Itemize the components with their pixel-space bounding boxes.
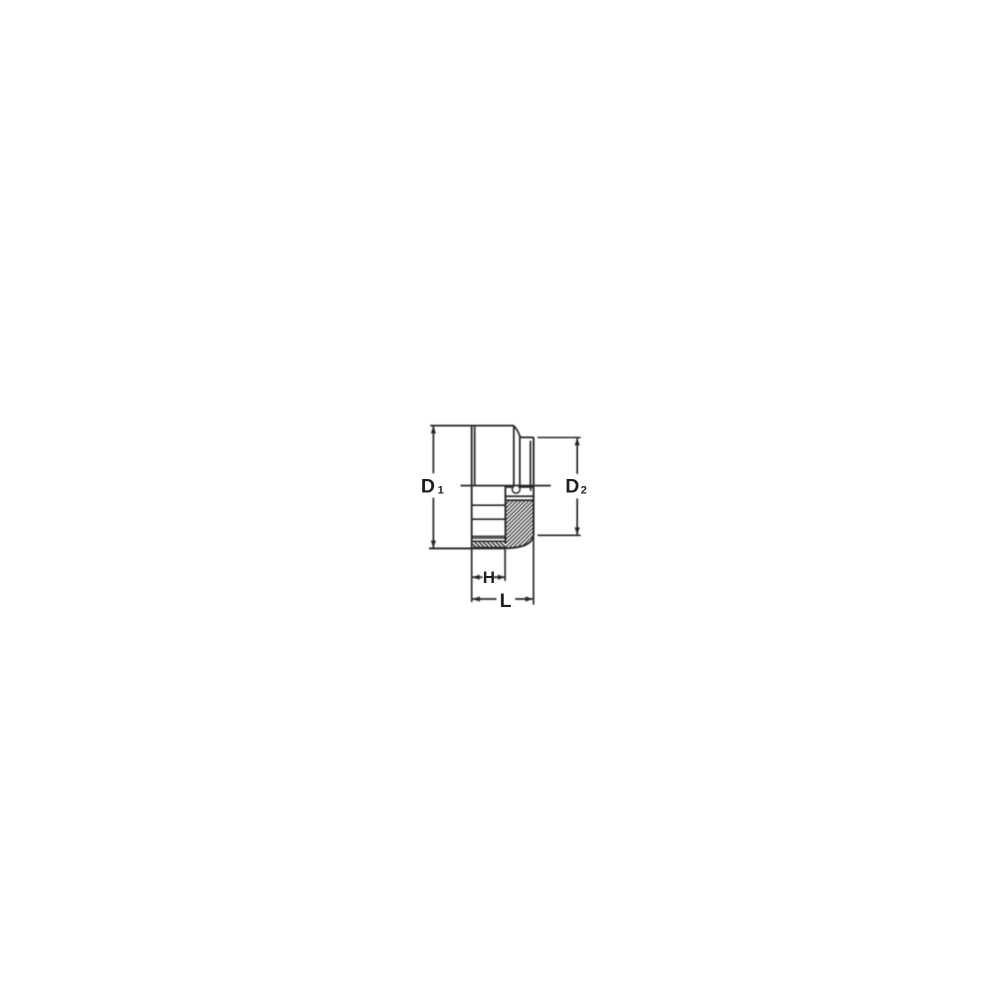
- svg-text:L: L: [500, 590, 512, 612]
- svg-text:D: D: [421, 475, 435, 497]
- svg-text:1: 1: [438, 485, 444, 497]
- svg-text:D: D: [565, 475, 579, 497]
- svg-text:2: 2: [581, 485, 587, 497]
- svg-text:H: H: [483, 568, 495, 587]
